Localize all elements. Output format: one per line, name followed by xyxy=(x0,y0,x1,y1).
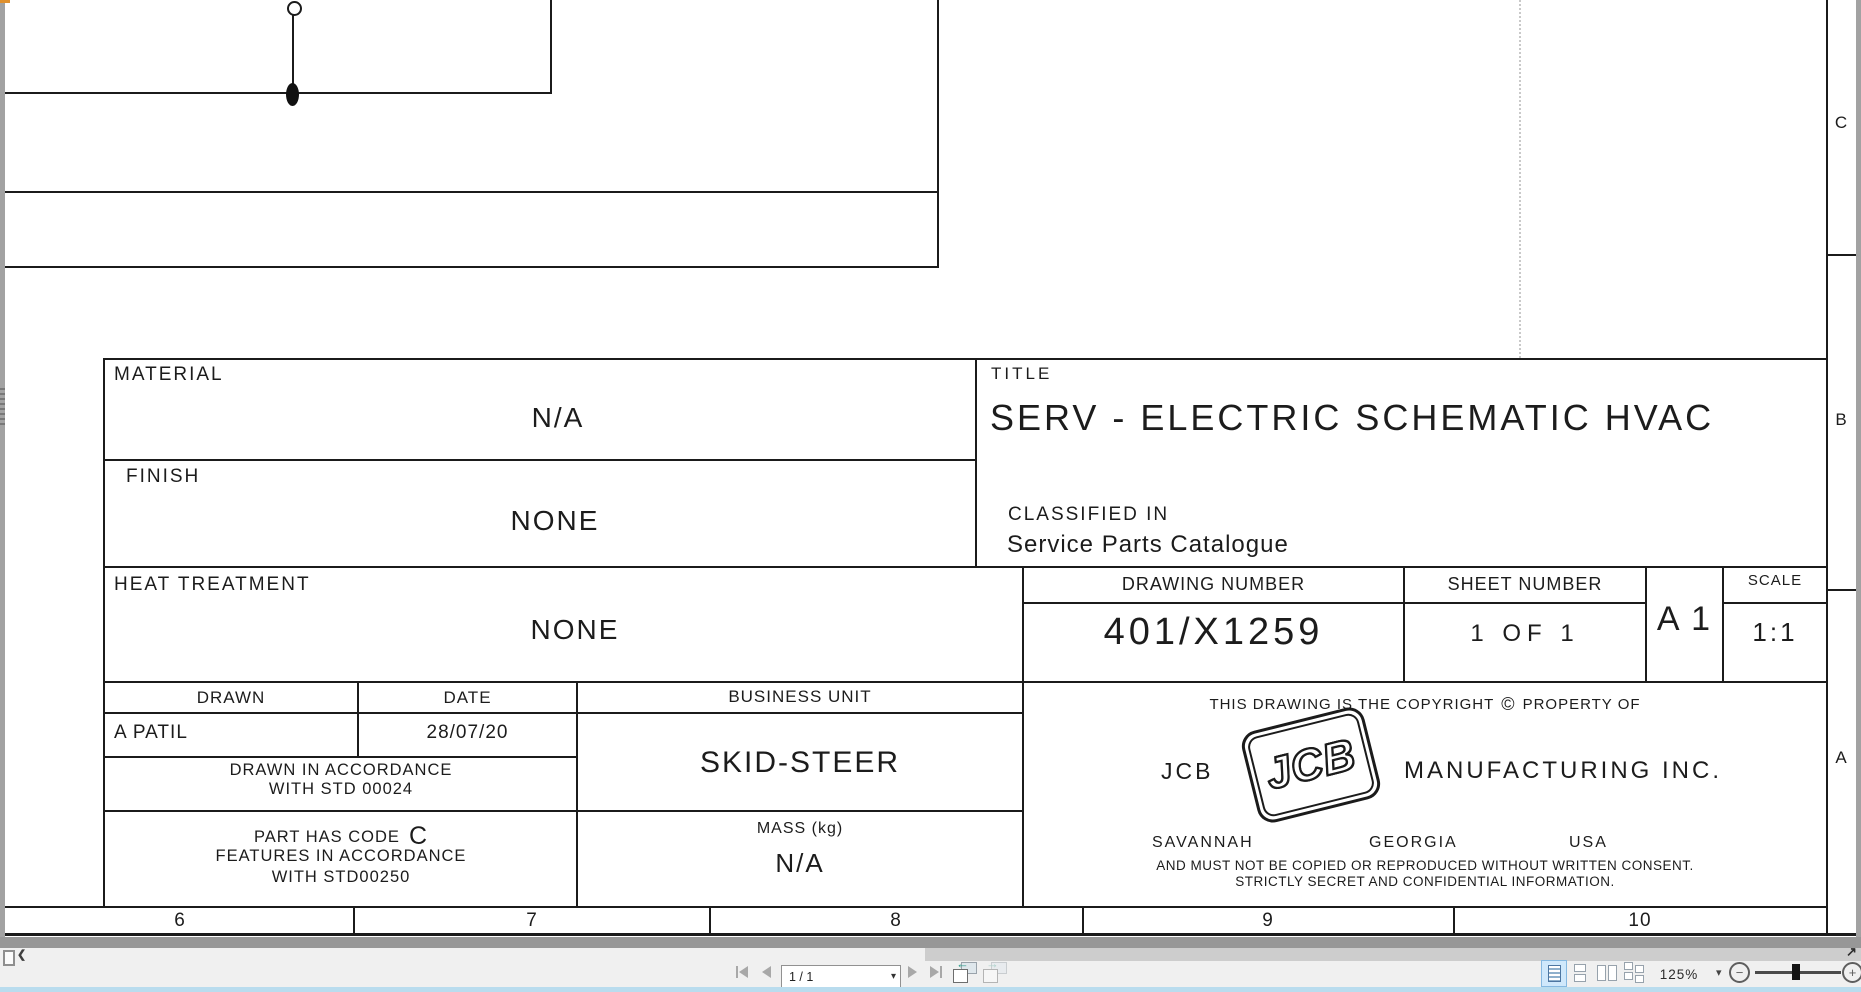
grid-line xyxy=(1023,602,1646,604)
first-page-button[interactable] xyxy=(736,966,748,978)
grid-line xyxy=(104,681,1828,683)
legal-line1: AND MUST NOT BE COPIED OR REPRODUCED WIT… xyxy=(1023,858,1827,873)
business-unit-value: SKID-STEER xyxy=(577,746,1023,780)
schematic-wire xyxy=(292,10,294,93)
fold-mark xyxy=(0,388,5,426)
corner-highlight xyxy=(0,0,10,3)
title-label: TITLE xyxy=(991,364,1052,384)
continuous-view-icon xyxy=(1574,964,1586,982)
connector-circle xyxy=(287,1,302,16)
zone-separator xyxy=(1082,906,1084,935)
fold-centerline xyxy=(1519,0,1521,358)
previous-view-front-window-icon xyxy=(953,969,968,983)
mass-label: MASS (kg) xyxy=(577,820,1023,838)
copyright-line: THIS DRAWING IS THE COPYRIGHT © PROPERTY… xyxy=(1023,694,1827,715)
part-code-line2: FEATURES IN ACCORDANCE xyxy=(104,847,578,866)
part-code-text: PART HAS CODE xyxy=(254,828,400,847)
viewer-bottom-margin xyxy=(0,937,1861,948)
page-panel-icon[interactable] xyxy=(3,950,15,966)
copyright-symbol-icon: © xyxy=(1501,694,1515,715)
zone-letter: B xyxy=(1828,410,1854,430)
zone-number: 8 xyxy=(856,910,936,932)
zone-separator xyxy=(1453,906,1455,935)
single-page-view-icon xyxy=(1548,965,1561,982)
last-page-icon xyxy=(930,966,939,978)
heat-treatment-label: HEAT TREATMENT xyxy=(114,574,311,596)
location-state: GEORGIA xyxy=(1369,834,1458,852)
part-code-line3: WITH STD00250 xyxy=(104,868,578,887)
schematic-wire xyxy=(937,0,939,268)
date-label: DATE xyxy=(358,688,577,708)
business-unit-label: BUSINESS UNIT xyxy=(577,687,1023,707)
zone-separator xyxy=(353,906,355,935)
heat-treatment-value: NONE xyxy=(475,614,675,646)
grid-line xyxy=(104,712,1023,714)
classified-value: Service Parts Catalogue xyxy=(1007,531,1289,559)
previous-view-button[interactable]: ← xyxy=(953,962,978,983)
next-page-icon xyxy=(908,966,917,978)
two-page-view-icon xyxy=(1597,965,1617,981)
grid-line xyxy=(104,756,578,758)
location-country: USA xyxy=(1569,834,1608,852)
schematic-wire xyxy=(5,191,939,193)
schematic-wire xyxy=(5,266,939,268)
zone-number: 7 xyxy=(492,910,572,932)
viewer-right-margin xyxy=(1856,0,1861,937)
material-value: N/A xyxy=(458,402,658,434)
window-bottom-edge xyxy=(0,987,1861,992)
drawn-note-line2: WITH STD 00024 xyxy=(104,780,578,799)
sheet-inner-border-right xyxy=(1826,0,1828,936)
sheet-size: A 1 xyxy=(1646,600,1723,639)
drawing-number-value: 401/X1259 xyxy=(1023,611,1404,654)
material-label: MATERIAL xyxy=(114,364,224,386)
next-view-button[interactable]: → xyxy=(983,962,1008,983)
grid-line xyxy=(104,459,976,461)
two-page-view-button[interactable] xyxy=(1595,960,1619,985)
drawing-viewer-window: MATERIAL N/A FINISH NONE HEAT TREATMENT … xyxy=(0,0,1861,992)
zone-letter: C xyxy=(1828,113,1854,133)
horizontal-scrollbar-thumb[interactable] xyxy=(925,948,1861,961)
scale-value: 1:1 xyxy=(1723,617,1827,648)
sheet-number-label: SHEET NUMBER xyxy=(1404,574,1646,595)
zoom-level-value[interactable]: 125% xyxy=(1650,967,1708,982)
zoom-out-button[interactable]: − xyxy=(1729,962,1750,983)
zone-number: 6 xyxy=(140,910,220,932)
first-page-icon xyxy=(736,966,738,978)
single-page-view-button[interactable] xyxy=(1541,960,1567,987)
zone-number: 9 xyxy=(1228,910,1308,932)
minus-icon: − xyxy=(1736,966,1744,979)
continuous-view-button[interactable] xyxy=(1568,960,1592,985)
collapse-panel-chevron-icon[interactable]: ❮ xyxy=(17,948,26,961)
sheet-number-value: 1 OF 1 xyxy=(1404,620,1646,648)
plus-icon: + xyxy=(1849,966,1857,979)
zoom-in-button[interactable]: + xyxy=(1842,962,1861,983)
viewer-left-margin xyxy=(0,0,5,937)
grid-line xyxy=(104,566,1828,568)
schematic-wire xyxy=(5,92,552,94)
next-view-arrow-icon: → xyxy=(986,956,999,971)
drawing-number-label: DRAWING NUMBER xyxy=(1023,574,1404,595)
location-city: SAVANNAH xyxy=(1152,834,1254,852)
grid-line xyxy=(1723,602,1827,604)
two-page-continuous-view-button[interactable] xyxy=(1622,960,1646,985)
page-combobox-caret-icon[interactable]: ▾ xyxy=(891,971,900,982)
drawn-note-line1: DRAWN IN ACCORDANCE xyxy=(104,761,578,780)
finish-label: FINISH xyxy=(126,466,200,488)
page-number-combobox[interactable]: 1 / 1 ▾ xyxy=(781,965,901,988)
first-page-arrow-icon xyxy=(739,966,748,978)
company-prefix: JCB xyxy=(1161,758,1213,785)
junction-dot xyxy=(286,83,299,106)
zoom-dropdown-caret-icon[interactable]: ▾ xyxy=(1716,966,1722,979)
copyright-suffix: PROPERTY OF xyxy=(1523,696,1641,713)
drawing-title: SERV - ELECTRIC SCHEMATIC HVAC xyxy=(990,397,1714,439)
zone-number: 10 xyxy=(1600,910,1680,932)
date-value: 28/07/20 xyxy=(358,722,577,744)
zone-letter-divider xyxy=(1827,589,1856,591)
finish-value: NONE xyxy=(455,505,655,537)
zone-letter-divider xyxy=(1827,254,1856,256)
classified-label: CLASSIFIED IN xyxy=(1008,504,1169,526)
next-view-front-window-icon xyxy=(983,969,998,983)
last-page-bar-icon xyxy=(940,966,942,978)
company-suffix: MANUFACTURING INC. xyxy=(1404,757,1722,785)
grid-line xyxy=(104,810,1023,812)
zone-separator xyxy=(709,906,711,935)
drawn-label: DRAWN xyxy=(104,688,358,708)
last-page-button[interactable] xyxy=(930,966,942,978)
page-number-field[interactable]: 1 / 1 xyxy=(782,970,891,984)
two-page-continuous-view-icon xyxy=(1624,962,1644,983)
mass-value: N/A xyxy=(577,848,1023,879)
zone-band-top-line xyxy=(5,906,1828,908)
scale-label: SCALE xyxy=(1723,572,1827,589)
drawn-value: A PATIL xyxy=(114,722,188,744)
schematic-wire xyxy=(550,0,552,93)
expand-arrow-icon[interactable]: ↗ xyxy=(1846,944,1857,960)
previous-view-arrow-icon: ← xyxy=(956,956,969,971)
legal-line2: STRICTLY SECRET AND CONFIDENTIAL INFORMA… xyxy=(1023,874,1827,889)
next-page-button[interactable] xyxy=(908,966,917,978)
titleblock-border-top xyxy=(104,358,1828,360)
zoom-slider-thumb[interactable] xyxy=(1792,964,1800,980)
grid-line xyxy=(975,358,977,567)
previous-page-button[interactable] xyxy=(762,966,771,978)
zone-band-bottom-line xyxy=(5,933,1856,936)
zone-letter: A xyxy=(1828,748,1854,768)
previous-page-icon xyxy=(762,966,771,978)
